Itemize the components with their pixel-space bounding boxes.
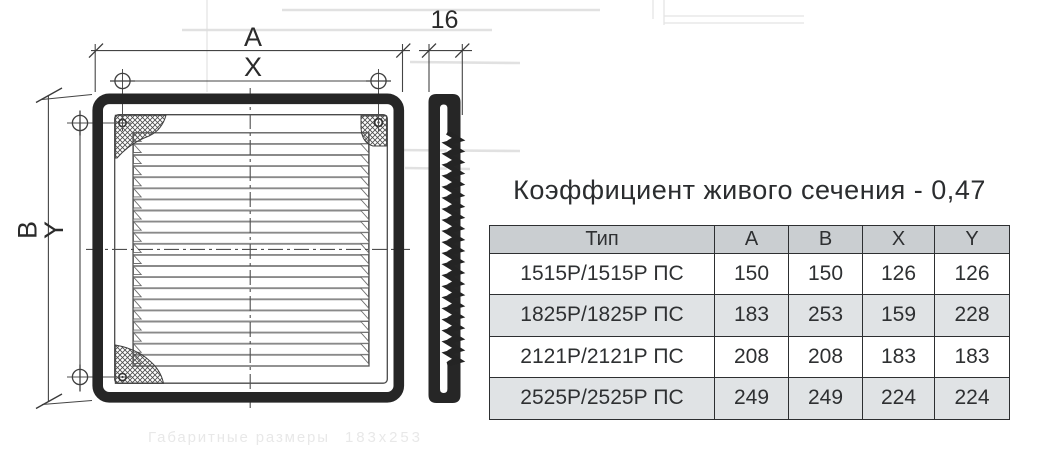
svg-text:Y: Y (39, 221, 69, 239)
svg-text:X: X (244, 52, 262, 82)
svg-text:16: 16 (431, 6, 459, 34)
svg-text:B: B (13, 221, 43, 239)
svg-text:A: A (244, 22, 262, 52)
svg-text:183х253: 183х253 (345, 429, 420, 446)
svg-text:Габаритные размеры: Габаритные размеры (148, 429, 328, 446)
